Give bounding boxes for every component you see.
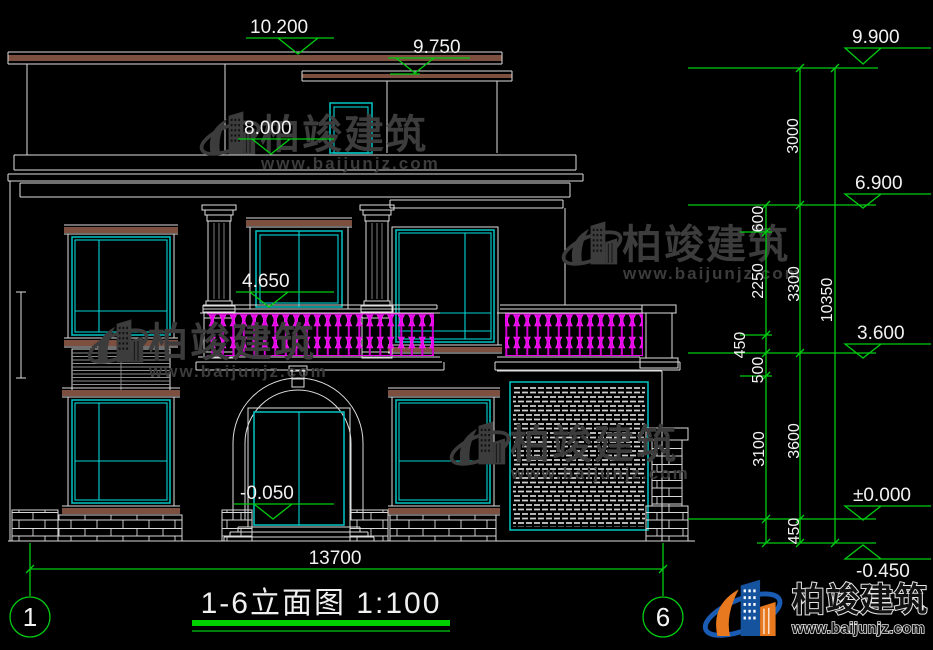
dim-text: 600: [750, 206, 767, 233]
watermark: 柏竣建筑 www.baijunjz.com: [197, 111, 439, 173]
level-label: 8.000: [244, 118, 292, 139]
dim-text: 2250: [750, 263, 767, 299]
dim-text: 450: [732, 332, 749, 359]
dim-text-overall: 10350: [819, 278, 836, 323]
watermark-name: 柏竣建筑: [148, 321, 316, 365]
level-label: ±0.000: [853, 485, 911, 506]
dim-text: 500: [750, 357, 767, 384]
watermark-url: www.baijunjz.com: [510, 464, 690, 483]
title-underline: [192, 620, 450, 626]
dim-text-width: 13700: [309, 548, 362, 569]
balcony-right: [495, 305, 680, 370]
watermark: 柏竣建筑 www.baijunjz.com: [85, 319, 327, 381]
elevation-marker-left: 10.200 9.750 8.000 4.650 -0.050: [234, 17, 470, 519]
axis-number-left: 1: [23, 602, 37, 632]
watermark-logo-icon: [85, 319, 150, 368]
elevation-marker-right: 9.900 6.900 3.600 ±0.000 -0.450: [845, 27, 931, 582]
watermark-url: www.baijunjz.com: [260, 154, 440, 173]
cad-canvas: 柏竣建筑 www.baijunjz.com 柏竣建筑 www.baijunjz.…: [0, 0, 933, 650]
brand-logo-icon: [700, 580, 785, 644]
dim-text: 3000: [785, 118, 802, 154]
window-2f-center: [246, 218, 352, 309]
balustrade: [505, 314, 643, 356]
level-label: 3.600: [857, 323, 905, 344]
dim-text: 3600: [786, 423, 803, 459]
watermark: 柏竣建筑 www.baijunjz.com: [447, 421, 689, 483]
drawing-title: 1-6立面图 1:100: [201, 587, 442, 620]
watermark-url: www.baijunjz.com: [622, 264, 802, 283]
watermark-logo-icon: [447, 421, 512, 470]
level-label: -0.450: [856, 561, 910, 582]
level-label: -0.050: [240, 483, 294, 504]
dim-text: 3100: [751, 431, 768, 467]
dim-text: 3300: [786, 266, 803, 302]
level-label: 10.200: [250, 17, 308, 38]
window-1f-left: [62, 388, 180, 515]
brand-url: www.baijunjz.com: [791, 621, 925, 637]
watermark-url: www.baijunjz.com: [148, 362, 328, 381]
dimension-chains-right: 600 2250 450 500 3100 3000 3300 3600 450…: [688, 64, 878, 547]
dim-text: 450: [786, 518, 803, 545]
level-label: 6.900: [855, 173, 903, 194]
elevation-drawing: 柏竣建筑 www.baijunjz.com 柏竣建筑 www.baijunjz.…: [0, 0, 933, 650]
level-label: 9.900: [852, 27, 900, 48]
axis-number-right: 6: [656, 602, 670, 632]
brand-block: 柏竣建筑 www.baijunjz.com: [700, 580, 928, 644]
level-label: 4.650: [242, 271, 290, 292]
watermarks: 柏竣建筑 www.baijunjz.com 柏竣建筑 www.baijunjz.…: [85, 111, 801, 483]
watermark-logo-icon: [559, 221, 624, 270]
brand-name: 柏竣建筑: [792, 581, 928, 618]
watermark-name: 柏竣建筑: [510, 423, 678, 467]
title-block: 1-6立面图 1:100: [192, 587, 450, 631]
level-label: 9.750: [413, 37, 461, 58]
